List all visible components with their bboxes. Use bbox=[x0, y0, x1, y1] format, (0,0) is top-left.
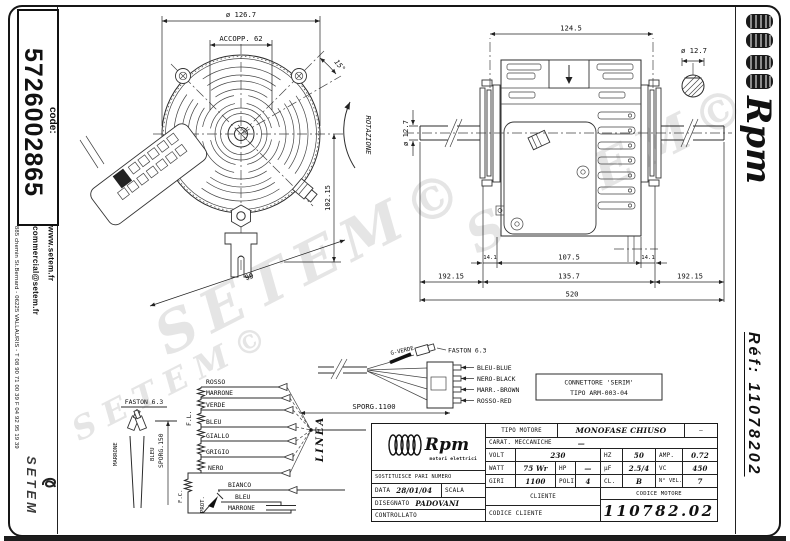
dim-shaft-right: 192.15 bbox=[677, 272, 703, 281]
nvel-value: 7 bbox=[683, 475, 717, 488]
codice-motore-label: CODICE MOTORE bbox=[601, 488, 717, 500]
watt-label: WATT bbox=[486, 462, 516, 475]
vc-label: VC bbox=[656, 462, 683, 475]
setem-swirl-icon bbox=[39, 474, 59, 494]
title-block: Rpm motori elettrici SOSTITUISCE PARI NU… bbox=[371, 423, 718, 522]
hz-value: 50 bbox=[623, 449, 656, 462]
dim-center: 135.7 bbox=[558, 272, 580, 281]
wire-label: BLEU bbox=[235, 493, 251, 501]
cl-label: CL. bbox=[601, 475, 623, 488]
carat-value: — bbox=[578, 439, 585, 448]
address-text: 885 chemin St.Bernard - 06225 VALLAURIS … bbox=[13, 226, 19, 526]
sporg-1100-label: SPORG.1100 bbox=[352, 402, 395, 411]
volt-value: 230 bbox=[516, 449, 601, 462]
fc-label: F.C. bbox=[178, 490, 184, 503]
dim-diameter: ø 126.7 bbox=[226, 10, 256, 19]
setem-logo-text: SETEM bbox=[24, 456, 39, 516]
giri-value: 1100 bbox=[516, 475, 556, 488]
nvel-label: N° VEL. bbox=[656, 475, 683, 488]
data-cell: DATA 28/01/04 bbox=[372, 484, 442, 498]
code-box: code: 5726002865 bbox=[17, 9, 59, 226]
rotation-label: ROTAZIONE bbox=[364, 116, 373, 156]
disegnato-label: DISEGNATO bbox=[375, 500, 409, 507]
linea-label: LINEA bbox=[315, 416, 326, 463]
faston-left-label: FASTON 6.3 bbox=[125, 398, 164, 406]
dim-hub-right: 14.1 bbox=[641, 255, 654, 261]
carat-meccaniche-cell: CARAT. MECCANICHE — bbox=[486, 438, 717, 449]
amp-label: AMP. bbox=[656, 449, 683, 462]
cl-value: B bbox=[623, 475, 656, 488]
brand-cell: Rpm motori elettrici bbox=[372, 424, 486, 471]
shaft-section-detail: ø 12.7 bbox=[681, 46, 707, 97]
wire-label: GIALLO bbox=[206, 432, 229, 440]
sporg-150-label: SPORG.150 bbox=[157, 433, 165, 468]
amp-value: 0.72 bbox=[683, 449, 717, 462]
data-value: 28/01/04 bbox=[396, 486, 432, 495]
connector-wire-label: MARR.-BROWN bbox=[477, 386, 519, 394]
wire-label: ROSSO bbox=[206, 378, 225, 386]
mounting-lug bbox=[176, 69, 191, 84]
fork-bracket bbox=[225, 233, 257, 277]
connector-wire-label: NERO-BLACK bbox=[477, 375, 516, 383]
rpm-coil-icon bbox=[741, 13, 779, 93]
dim-shaft: ø 12.7 bbox=[401, 120, 410, 146]
watt-value: 75 Wr bbox=[516, 462, 556, 475]
wire-label: BIANCO bbox=[228, 481, 251, 489]
fl-label: F.L. bbox=[185, 411, 193, 426]
carat-label: CARAT. MECCANICHE bbox=[489, 440, 552, 446]
prot-label: PROT. bbox=[200, 496, 206, 513]
contact-block: www.setem.fr commercial@setem.fr bbox=[28, 226, 58, 456]
hp-value: — bbox=[576, 462, 601, 475]
bottom-edge-bar bbox=[4, 536, 786, 541]
dim-coupling: ACCOPP. 62 bbox=[219, 34, 262, 43]
disegnato-value: PADOVANI bbox=[415, 499, 459, 508]
wire-label: VERDE bbox=[206, 401, 225, 409]
tipo-motore-value: MONOFASE CHIUSO bbox=[558, 424, 685, 438]
dim-width: 99 bbox=[244, 271, 255, 282]
wire-label: MARRONE bbox=[228, 504, 255, 512]
hz-label: HZ bbox=[601, 449, 623, 462]
uf-value: 2.5/4 bbox=[623, 462, 656, 475]
wire-label: GRIGIO bbox=[206, 448, 229, 456]
codice-motore-value: 110782.02 bbox=[601, 500, 717, 521]
dim-body: 107.5 bbox=[558, 253, 580, 262]
codice-cliente-cell: CODICE CLIENTE bbox=[486, 506, 601, 521]
rotation-arrow bbox=[344, 102, 355, 168]
website-link[interactable]: www.setem.fr bbox=[43, 226, 58, 456]
drawing-sheet: SETEM© SETEM© SETEM© bbox=[0, 0, 790, 541]
sostituisce-cell: SOSTITUISCE PARI NUMERO bbox=[372, 471, 486, 484]
code-value: 5726002865 bbox=[18, 48, 47, 197]
right-sidebar-divider bbox=[735, 7, 736, 534]
data-label: DATA bbox=[375, 487, 390, 494]
side-view: 124.5 ø 12.7 ø 12.7 14.1 107. bbox=[401, 24, 732, 303]
dim-shaft-detail: ø 12.7 bbox=[681, 46, 707, 55]
dim-hub-left: 14.1 bbox=[483, 255, 496, 261]
setem-logo: SETEM bbox=[24, 436, 59, 532]
dim-angle: 15° bbox=[332, 58, 347, 74]
faston-terminal-earth bbox=[415, 343, 435, 356]
connector-note-line2: TIPO ARM-003-04 bbox=[570, 389, 628, 397]
faston-right-label: FASTON 6.3 bbox=[448, 347, 487, 355]
connector-wire-label: BLEU-BLUE bbox=[477, 364, 512, 372]
connector-note-line1: CONNETTORE 'SERIM' bbox=[564, 379, 633, 387]
code-label: code: bbox=[47, 107, 58, 134]
cliente-cell: CLIENTE bbox=[486, 488, 601, 506]
controllato-cell: CONTROLLATO bbox=[372, 510, 486, 521]
wire-label: BLEU bbox=[206, 418, 222, 426]
scala-cell: SCALA bbox=[442, 484, 486, 498]
mounting-lug bbox=[292, 69, 307, 84]
faston-wire-bleu: BLEU bbox=[150, 448, 156, 461]
table-brand: Rpm bbox=[425, 435, 470, 455]
faston-wire-marrone: MARRONE bbox=[113, 442, 119, 466]
disegnato-cell: DISEGNATO PADOVANI bbox=[372, 498, 486, 510]
poli-value: 4 bbox=[576, 475, 601, 488]
vc-value: 450 bbox=[683, 462, 717, 475]
dim-top: 124.5 bbox=[560, 24, 582, 33]
wire-label: NERO bbox=[208, 464, 224, 472]
tipo-motore-extra: — bbox=[685, 424, 717, 438]
dim-shaft-left: 192.15 bbox=[438, 272, 464, 281]
giri-label: GIRI bbox=[486, 475, 516, 488]
rpm-coil-icon-small bbox=[388, 433, 422, 457]
hp-label: HP bbox=[556, 462, 576, 475]
email-link[interactable]: commercial@setem.fr bbox=[28, 226, 43, 456]
connector-wire-label: ROSSO-RED bbox=[477, 397, 512, 405]
wire-label: MARRONE bbox=[206, 389, 233, 397]
rpm-brand-text: Rpm bbox=[738, 96, 778, 206]
dim-total: 520 bbox=[566, 290, 579, 299]
dim-height: 102.15 bbox=[323, 185, 332, 211]
front-view: ø 126.7 ACCOPP. 62 15° ROTAZIONE 102.15 … bbox=[80, 10, 373, 306]
volt-label: VOLT bbox=[486, 449, 516, 462]
tipo-motore-label: TIPO MOTORE bbox=[486, 424, 558, 438]
table-brand-sub: motori elettrici bbox=[372, 457, 486, 462]
uf-label: µF bbox=[601, 462, 623, 475]
reference-number: Réf: 11078202 bbox=[744, 332, 762, 534]
poli-label: POLI bbox=[556, 475, 576, 488]
